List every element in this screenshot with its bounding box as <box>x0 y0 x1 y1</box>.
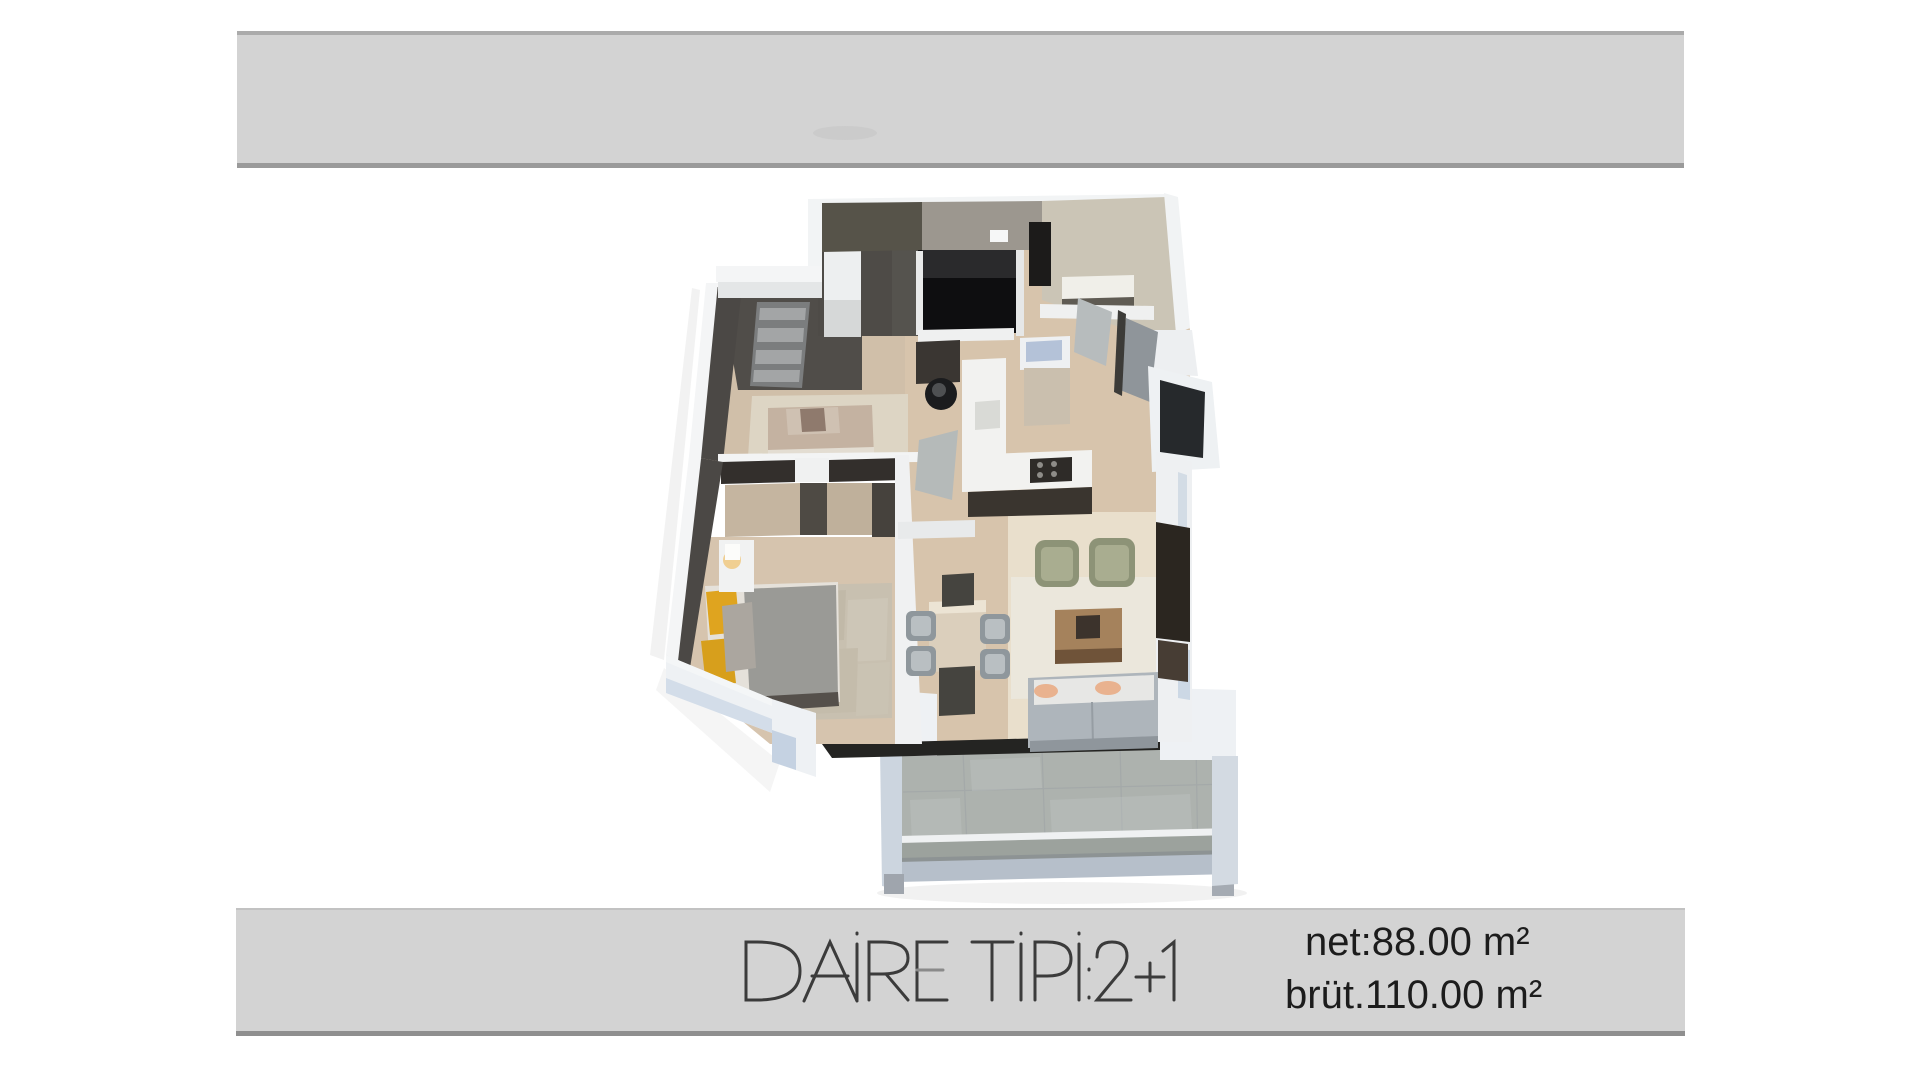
svg-text:net:88.00 m²: net:88.00 m² <box>1305 920 1530 964</box>
svg-text:brüt.110.00 m²: brüt.110.00 m² <box>1285 973 1542 1017</box>
